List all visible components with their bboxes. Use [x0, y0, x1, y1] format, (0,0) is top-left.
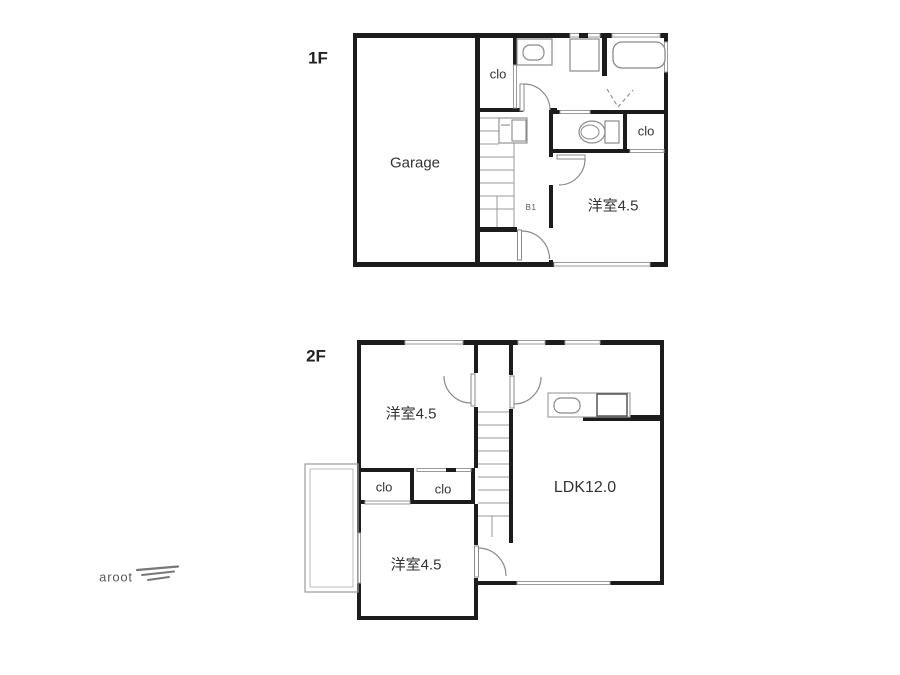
- room-label-western-room-1f: 洋室4.5: [588, 199, 639, 214]
- room-label-closet-right-2f: clo: [435, 483, 452, 496]
- floorplan-page: 1F Garage clo clo 洋室4.5 B1 2F 洋室4.5 clo …: [0, 0, 900, 675]
- stair-cabinet-icon: [499, 118, 527, 143]
- floor2-tag: 2F: [306, 348, 326, 365]
- floor2-windows: [358, 341, 611, 585]
- floor2-door-arcs: [444, 376, 541, 576]
- room-label-closet-side-1f: clo: [638, 125, 655, 138]
- toilet-icon: [579, 121, 619, 143]
- triple-lines-icon: [137, 567, 178, 581]
- room-label-closet-left-2f: clo: [376, 481, 393, 494]
- room-label-ldk: LDK12.0: [554, 480, 616, 496]
- bath-folding-door-icon: [607, 89, 633, 107]
- brand-text: aroot: [99, 571, 133, 584]
- room-label-western-room-top-2f: 洋室4.5: [386, 407, 437, 422]
- closet-slider-tick: [446, 468, 456, 472]
- floor2-stairs: [478, 412, 509, 537]
- hall-note-b1: B1: [526, 204, 537, 212]
- bathtub-icon: [613, 42, 665, 68]
- sink-vanity-icon: [517, 39, 552, 65]
- balcony: [305, 464, 358, 592]
- room-label-garage: Garage: [390, 156, 440, 171]
- floor2-door-leaves: [471, 374, 514, 577]
- floor1-tag: 1F: [308, 50, 328, 67]
- room-label-closet-top-1f: clo: [490, 68, 507, 81]
- washing-machine-icon: [570, 33, 599, 71]
- room-label-western-room-bottom-2f: 洋室4.5: [391, 558, 442, 573]
- kitchen-counter-icon: [548, 393, 630, 417]
- floorplan-drawing: [0, 0, 900, 675]
